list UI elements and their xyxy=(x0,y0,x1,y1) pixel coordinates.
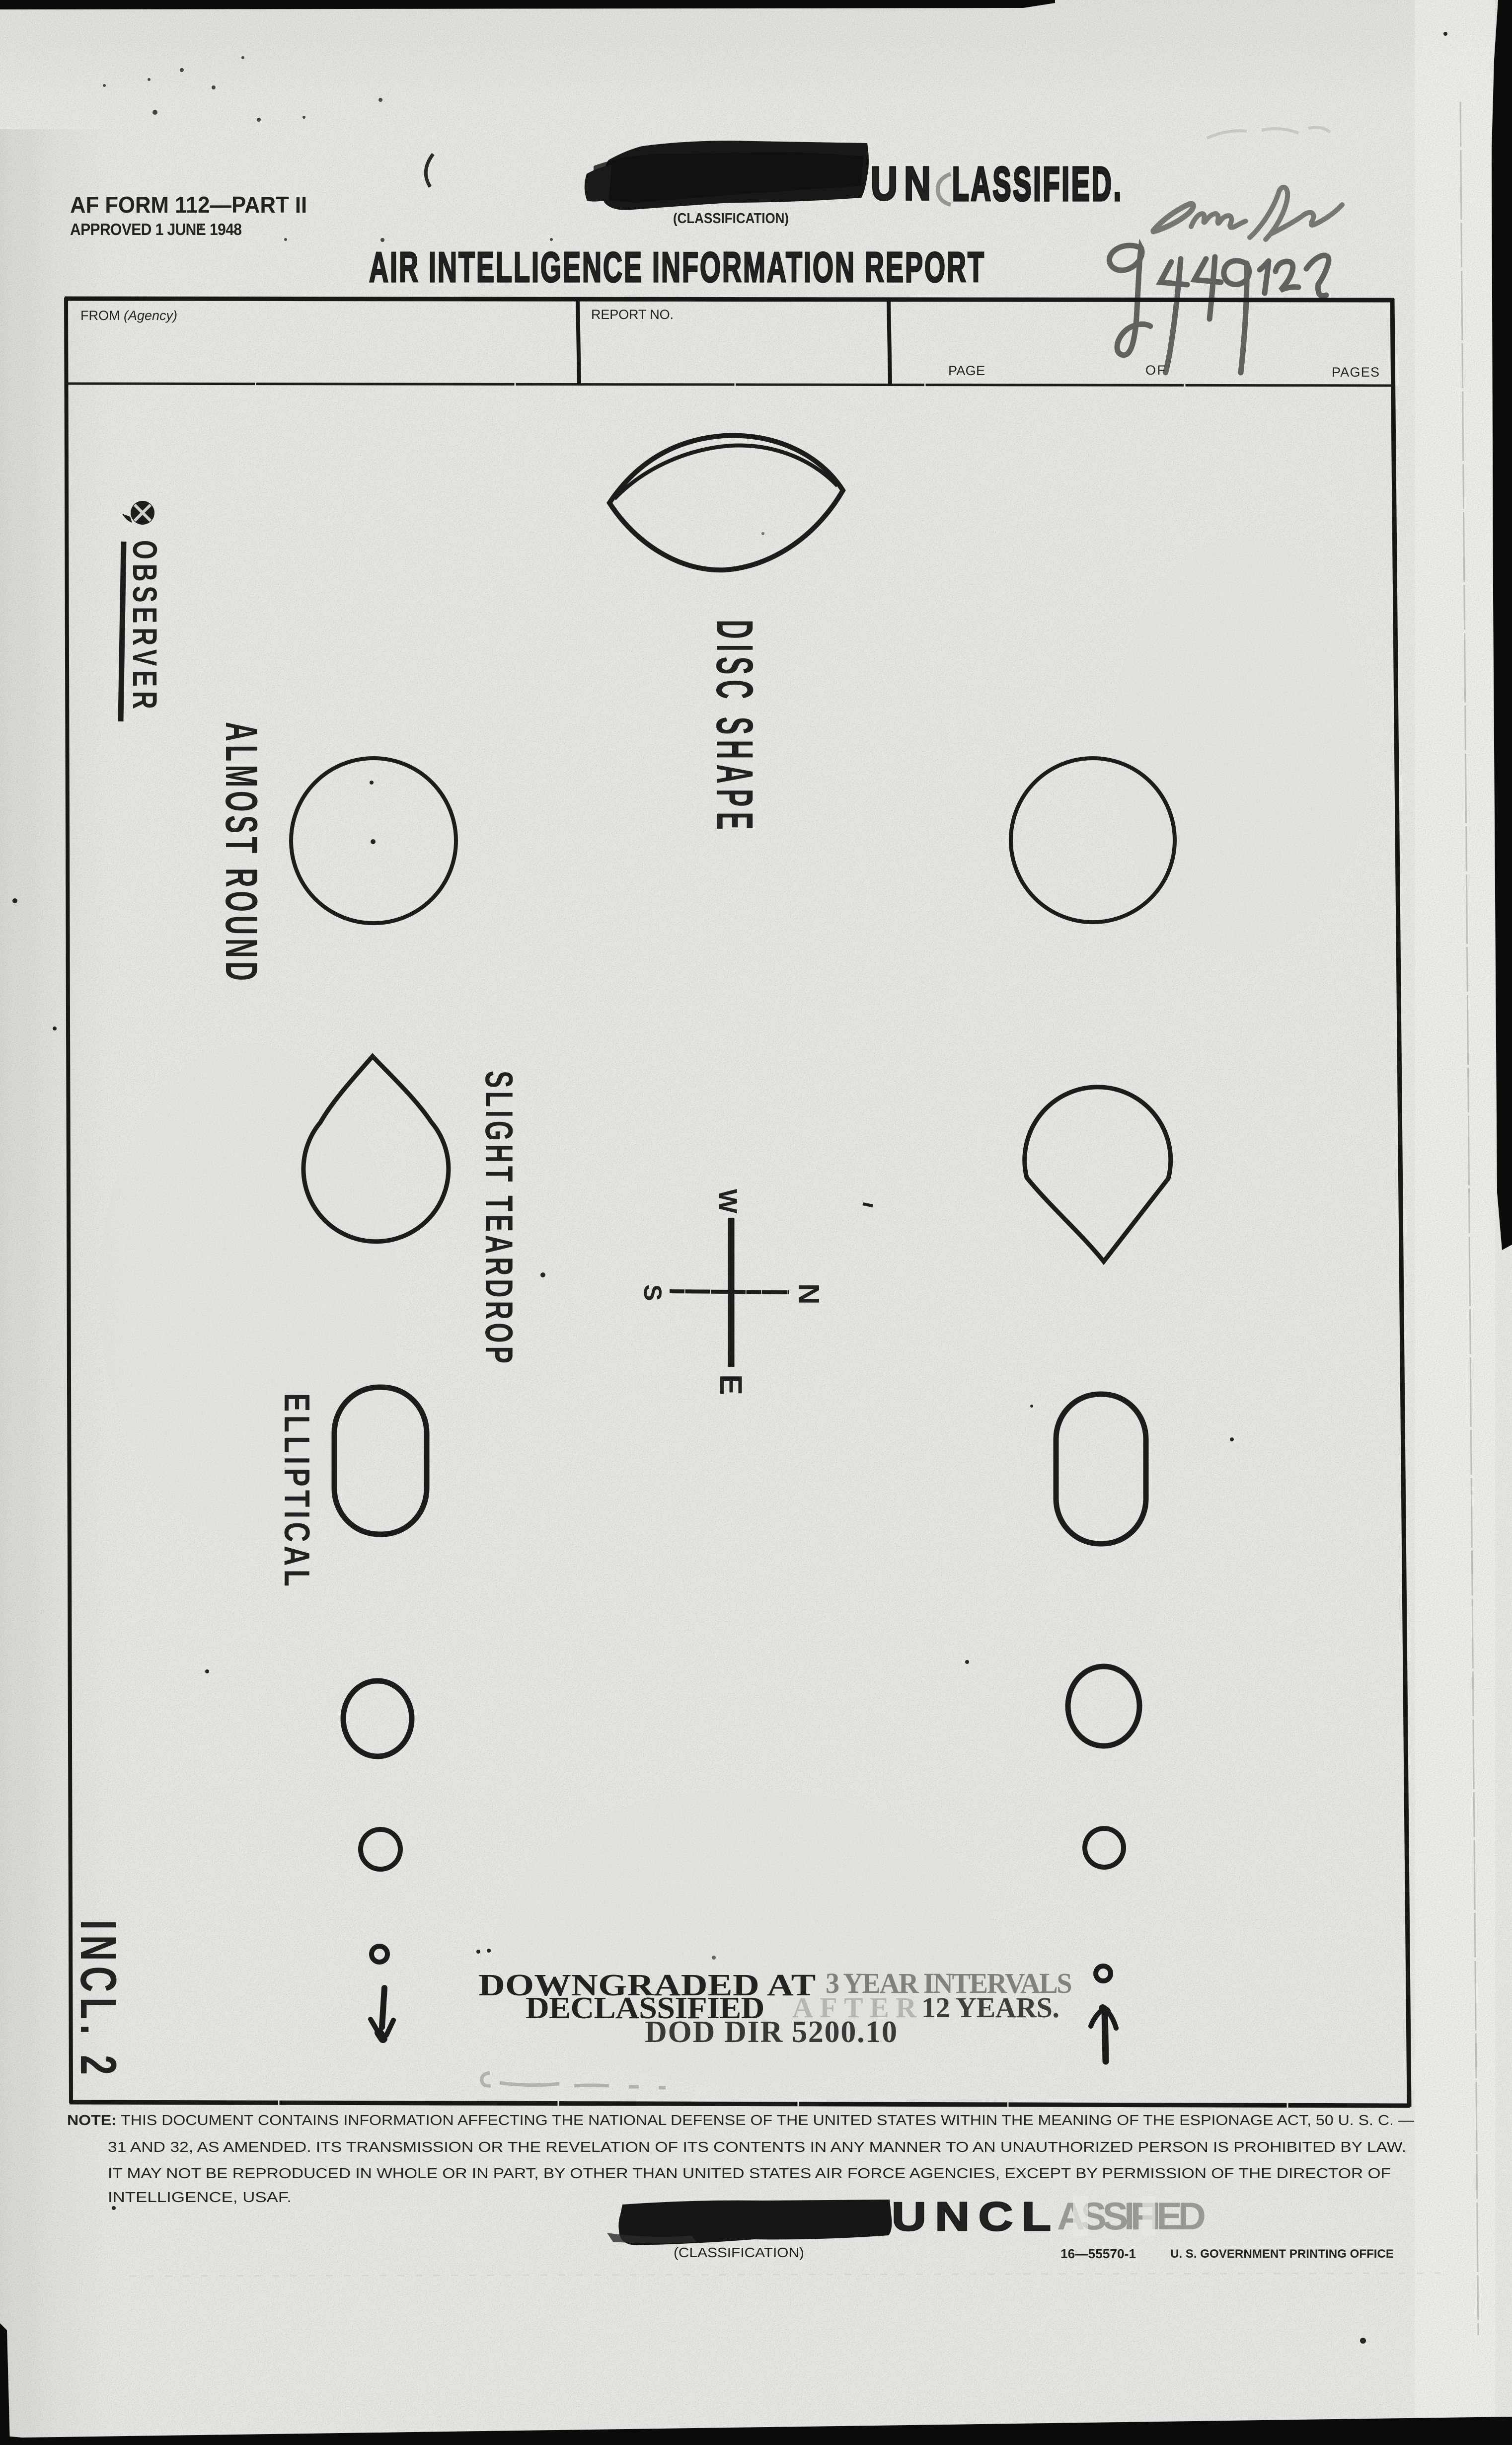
svg-text:PAGES: PAGES xyxy=(1332,365,1379,380)
svg-text:(CLASSIFICATION): (CLASSIFICATION) xyxy=(673,211,789,227)
svg-text:ALMOST ROUND: ALMOST ROUND xyxy=(217,722,267,981)
svg-text:OF: OF xyxy=(1145,363,1165,378)
svg-text:AIR INTELLIGENCE INFORMATION R: AIR INTELLIGENCE INFORMATION REPORT xyxy=(369,244,984,292)
svg-text:DISC SHAPE: DISC SHAPE xyxy=(705,620,763,830)
svg-text:ELLIPTICAL: ELLIPTICAL xyxy=(277,1393,317,1586)
svg-text:12 YEARS.: 12 YEARS. xyxy=(921,1991,1059,2024)
svg-text:S: S xyxy=(639,1284,667,1301)
svg-text:FROM (Agency): FROM (Agency) xyxy=(80,308,177,323)
svg-text:PAGE: PAGE xyxy=(948,363,985,378)
svg-text:NOTE: THIS DOCUMENT CONTAINS I: NOTE: THIS DOCUMENT CONTAINS INFORMATION… xyxy=(67,2113,1414,2129)
svg-text:DOD DIR 5200.10: DOD DIR 5200.10 xyxy=(645,2015,897,2049)
svg-text:(CLASSIFICATION): (CLASSIFICATION) xyxy=(674,2245,804,2260)
svg-text:E: E xyxy=(713,1374,748,1395)
svg-text:31 AND 32, AS AMENDED. ITS T: 31 AND 32, AS AMENDED. ITS TRANSMISSION … xyxy=(108,2139,1406,2155)
svg-text:LASSIFIED.: LASSIFIED. xyxy=(952,158,1121,211)
svg-text:U. S. GOVERNMENT PRINTING OFFI: U. S. GOVERNMENT PRINTING OFFICE xyxy=(1170,2247,1394,2261)
svg-text:16—55570-1: 16—55570-1 xyxy=(1060,2246,1136,2261)
svg-text:IT MAY NOT BE REPRODUCED IN WH: IT MAY NOT BE REPRODUCED IN WHOLE OR IN … xyxy=(108,2166,1391,2182)
svg-text:SLIGHT TEARDROP: SLIGHT TEARDROP xyxy=(477,1071,520,1363)
svg-text:W: W xyxy=(713,1189,742,1214)
svg-text:APPROVED 1 JUNE 1948: APPROVED 1 JUNE 1948 xyxy=(70,220,242,238)
svg-text:N: N xyxy=(792,1283,825,1305)
svg-text:REPORT NO.: REPORT NO. xyxy=(591,307,674,322)
svg-text:INTELLIGENCE, USAF.: INTELLIGENCE, USAF. xyxy=(108,2190,292,2206)
svg-text:AF FORM 112—PART II: AF FORM 112—PART II xyxy=(70,192,307,218)
